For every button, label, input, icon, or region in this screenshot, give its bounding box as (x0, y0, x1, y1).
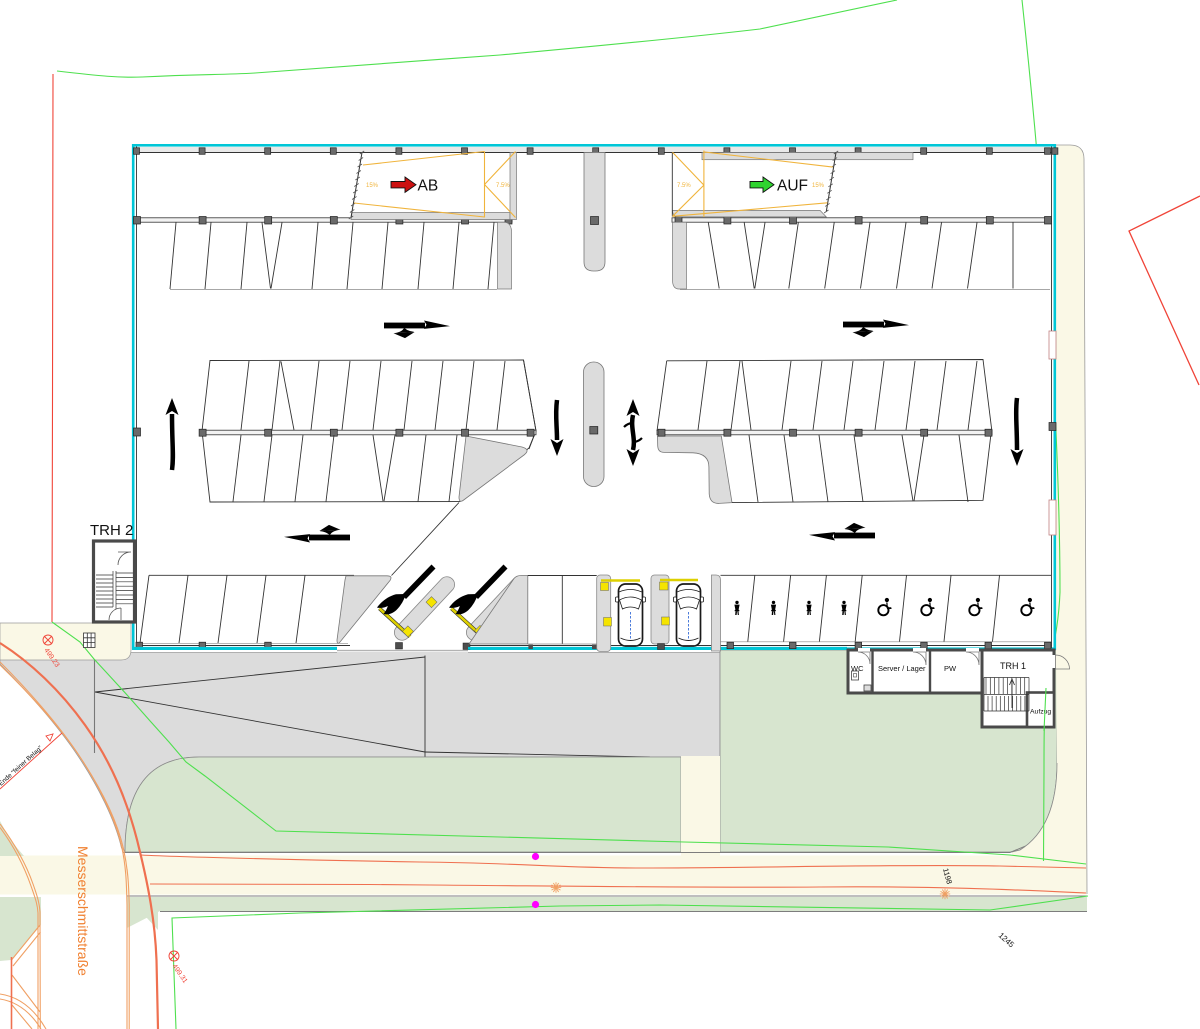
svg-text:AB: AB (418, 178, 439, 195)
svg-text:7.5%: 7.5% (677, 183, 691, 189)
svg-text:TRH 2: TRH 2 (90, 522, 133, 539)
svg-text:15%: 15% (366, 183, 379, 189)
svg-text:TRH 1: TRH 1 (1000, 661, 1026, 671)
svg-text:PW: PW (944, 664, 957, 673)
svg-text:Aufzug: Aufzug (1030, 709, 1051, 716)
svg-text:AUF: AUF (777, 178, 808, 195)
svg-text:WC: WC (851, 664, 864, 673)
svg-text:7.5%: 7.5% (496, 183, 510, 189)
svg-text:Server / Lager: Server / Lager (878, 664, 926, 673)
svg-text:15%: 15% (812, 183, 825, 189)
svg-text:Messerschmittstraße: Messerschmittstraße (75, 846, 91, 976)
